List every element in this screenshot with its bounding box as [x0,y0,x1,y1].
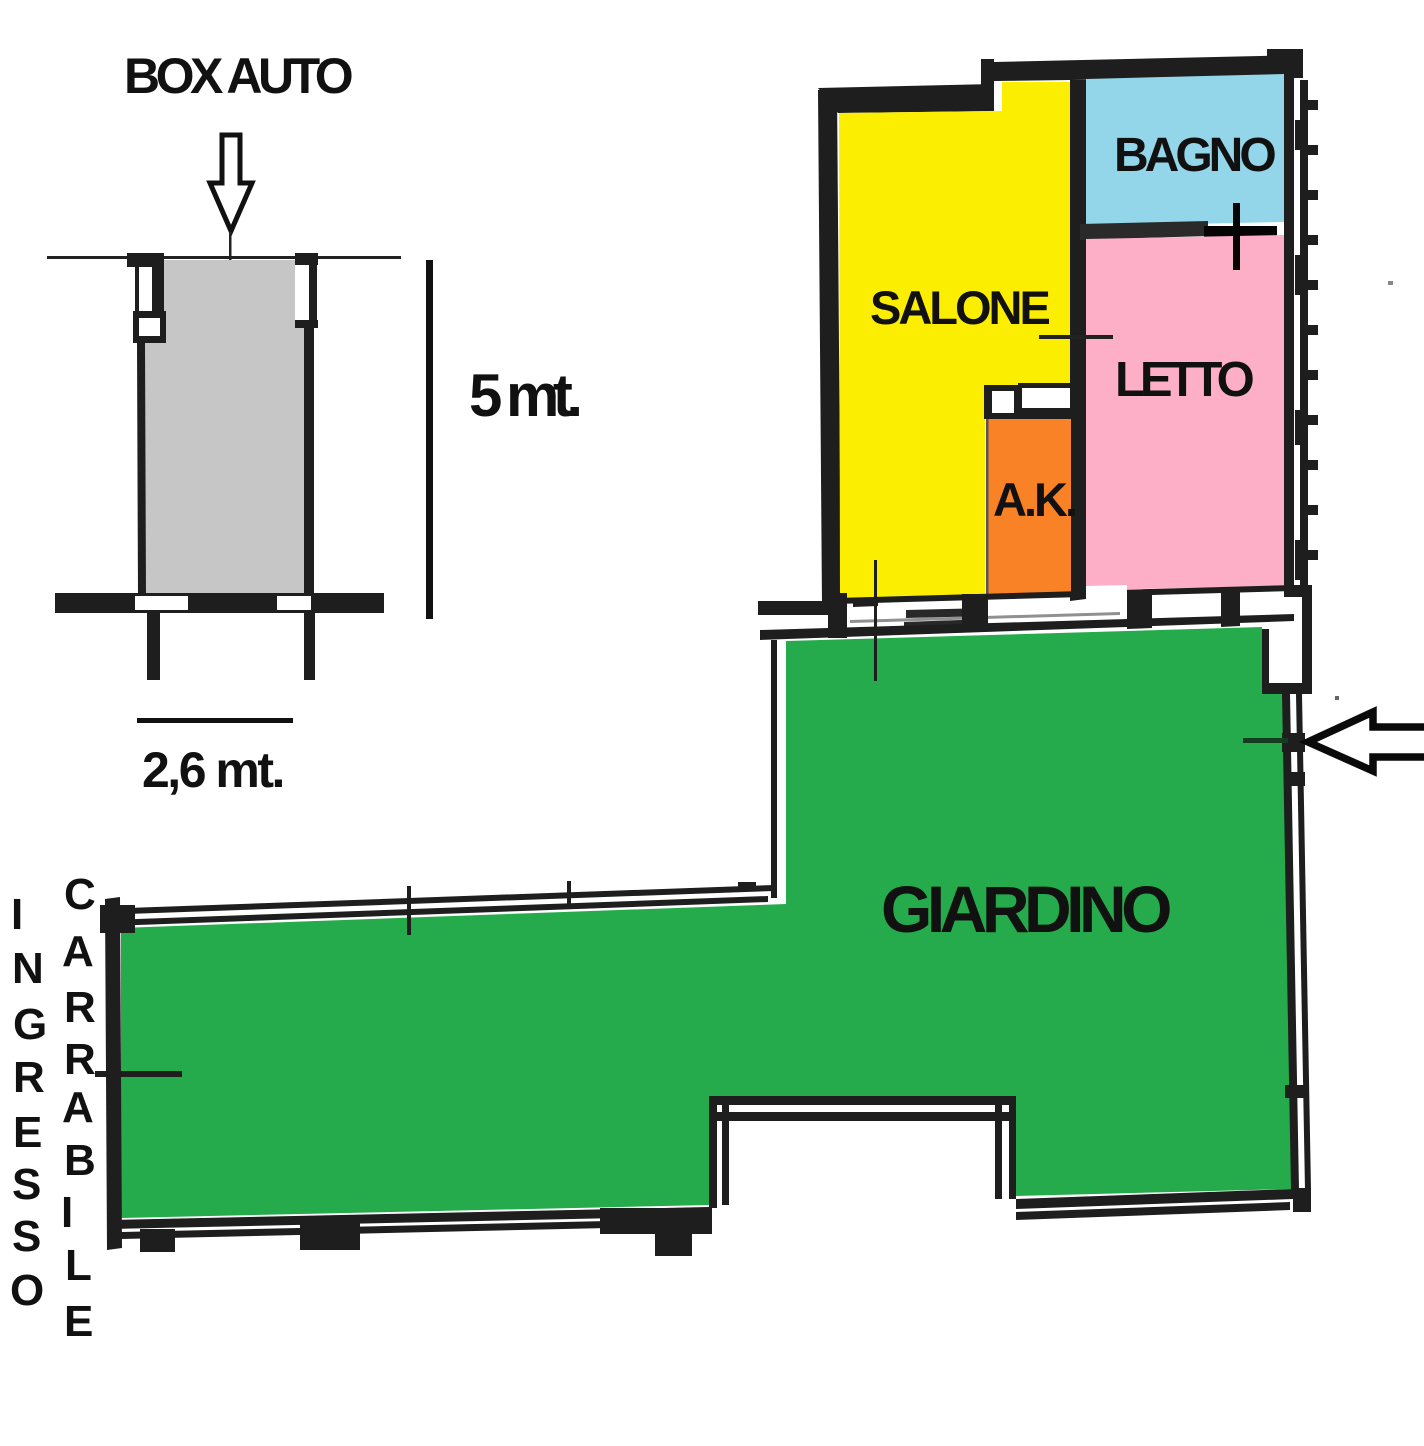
svg-text:A.K.: A.K. [993,473,1075,526]
svg-text:E: E [64,1297,93,1346]
svg-text:I: I [11,890,23,939]
svg-text:O: O [10,1266,44,1315]
svg-text:B: B [64,1136,96,1185]
svg-text:5 mt.: 5 mt. [469,362,579,429]
svg-text:GIARDINO: GIARDINO [881,872,1170,946]
svg-text:R: R [64,983,96,1032]
svg-text:LETTO: LETTO [1115,353,1254,407]
svg-text:A: A [62,927,94,976]
svg-text:BOX AUTO: BOX AUTO [124,48,352,104]
svg-text:N: N [12,944,44,993]
svg-text:G: G [13,1000,47,1049]
svg-text:R: R [13,1053,45,1102]
svg-text:I: I [61,1188,73,1237]
svg-text:SALONE: SALONE [870,281,1050,334]
svg-text:A: A [62,1083,94,1132]
svg-text:S: S [12,1212,41,1261]
svg-text:2,6 mt.: 2,6 mt. [142,742,283,798]
svg-text:R: R [64,1035,96,1084]
svg-text:E: E [13,1108,42,1157]
svg-text:S: S [12,1160,41,1209]
svg-text:L: L [65,1241,92,1290]
svg-text:BAGNO: BAGNO [1114,129,1275,182]
svg-text:C: C [64,870,96,919]
